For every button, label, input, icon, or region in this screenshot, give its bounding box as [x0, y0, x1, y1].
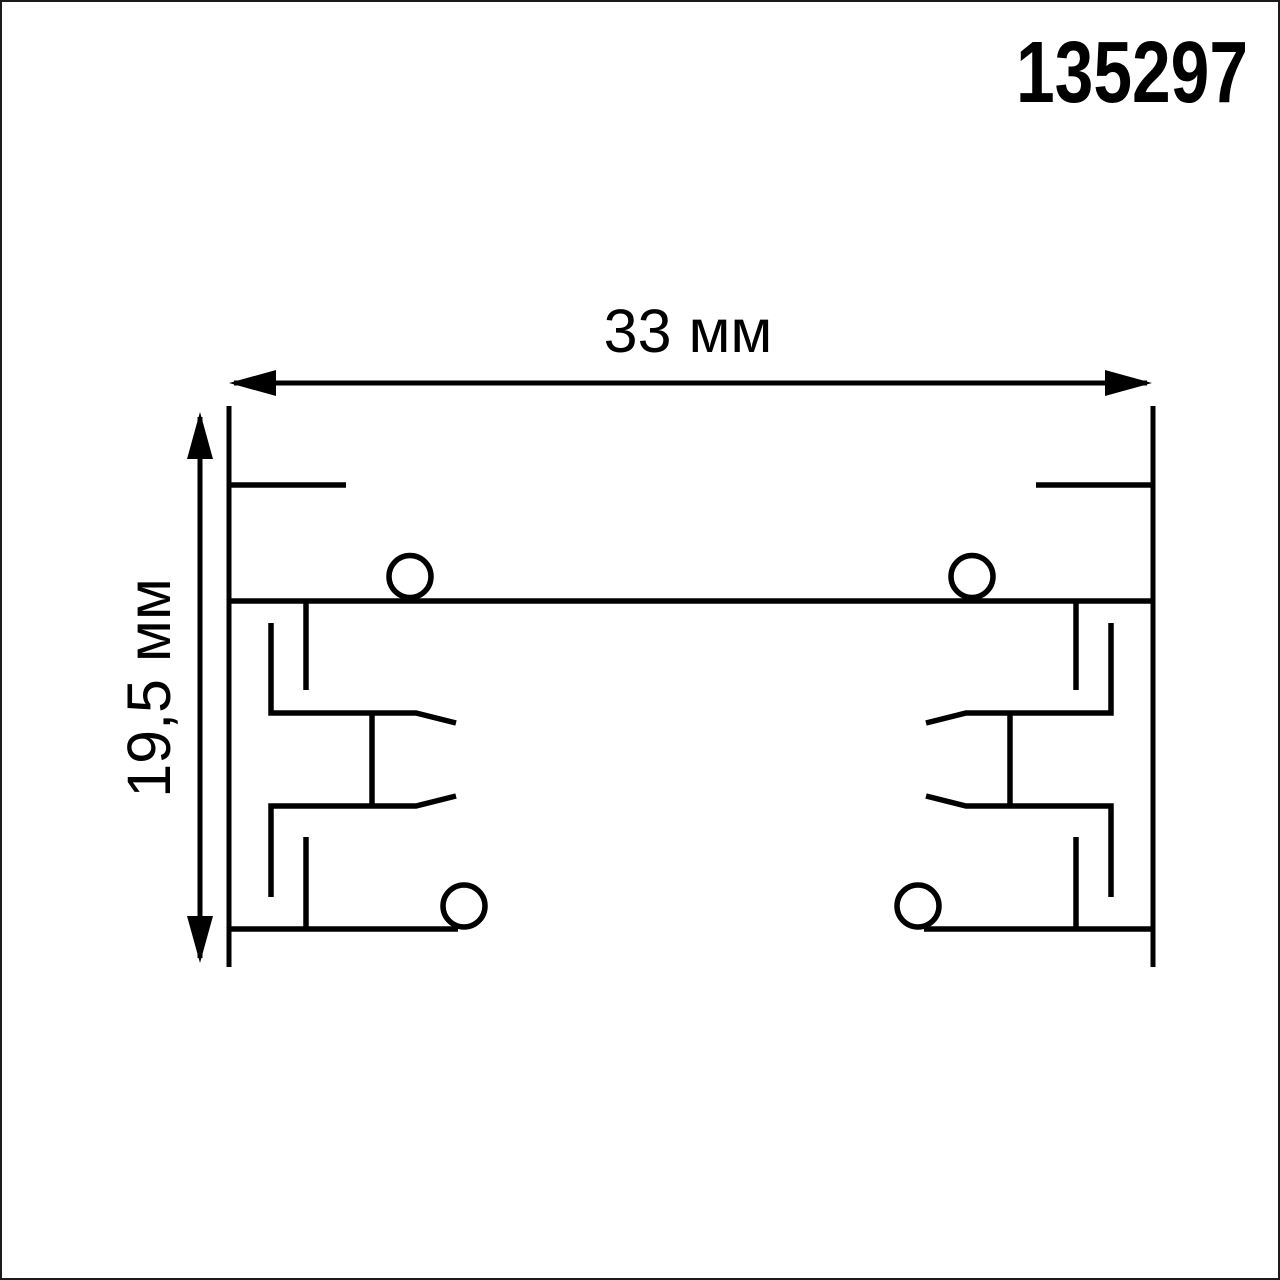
product-code: 135297	[1016, 24, 1248, 121]
drawing-page: 135297 33 мм 19,5 мм	[0, 0, 1280, 1280]
conductor-contact-circle	[389, 556, 431, 598]
conductor-contact-circle	[897, 885, 939, 927]
upper-contact-rail-right	[926, 623, 1111, 723]
extension-lines	[229, 406, 1153, 967]
arrowhead-left-icon	[229, 370, 276, 396]
arrowhead-down-icon	[187, 916, 213, 963]
height-dimension-label: 19,5 мм	[115, 578, 183, 798]
arrowhead-up-icon	[187, 412, 213, 459]
lower-contact-rail-right	[926, 796, 1111, 897]
width-dimension-label: 33 мм	[604, 297, 773, 365]
arrowhead-right-icon	[1105, 370, 1152, 396]
width-dimension: 33 мм	[229, 297, 1152, 396]
track-profile	[229, 485, 1153, 929]
track-profile-left	[229, 556, 485, 930]
lower-contact-rail-left	[271, 796, 456, 897]
upper-contact-rail-left	[271, 623, 456, 723]
conductor-contact-circle	[951, 556, 993, 598]
conductor-contact-circle	[443, 885, 485, 927]
height-dimension: 19,5 мм	[115, 412, 213, 963]
track-profile-right	[897, 556, 1153, 930]
page-border	[1, 1, 1279, 1279]
technical-drawing-canvas: 135297 33 мм 19,5 мм	[0, 0, 1280, 1280]
